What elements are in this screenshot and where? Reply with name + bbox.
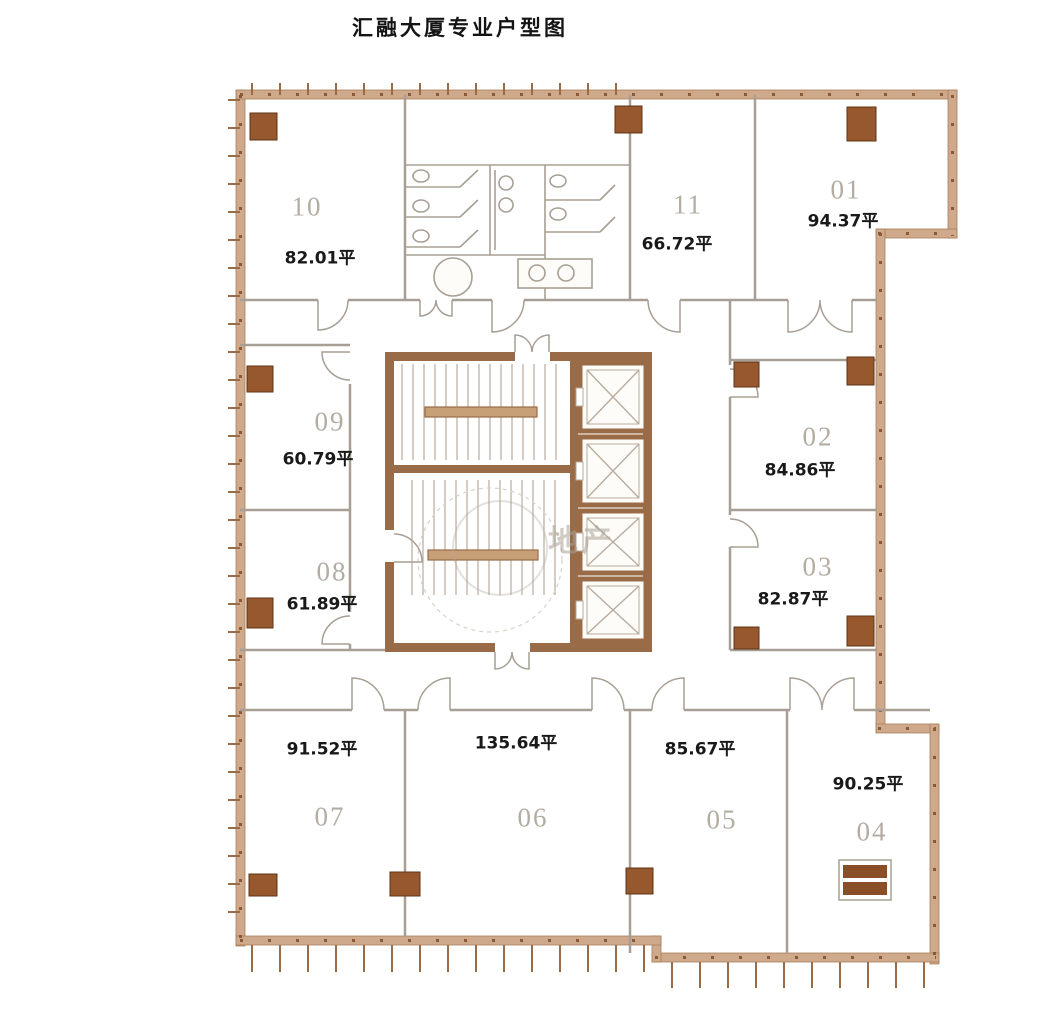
- unit-number-label: 09: [315, 407, 346, 438]
- unit-number-label: 11: [673, 190, 703, 221]
- elevator-shaft-icons: [576, 363, 646, 641]
- unit-number-label: 04: [857, 817, 888, 848]
- watermark-circle: [452, 500, 548, 596]
- unit-area-label: 90.25平: [833, 770, 904, 795]
- unit-number-label: 02: [803, 422, 834, 453]
- unit-number-label: 05: [707, 805, 738, 836]
- service-duct-marker: [839, 860, 891, 900]
- restroom-fixtures: [405, 165, 630, 300]
- unit-number-label: 08: [317, 557, 348, 588]
- unit-number-label: 01: [831, 175, 862, 206]
- unit-area-label: 94.37平: [808, 207, 879, 232]
- elevator-icon: [576, 437, 646, 505]
- unit-number-label: 07: [315, 802, 346, 833]
- unit-area-label: 61.89平: [287, 590, 358, 615]
- unit-area-label: 85.67平: [665, 735, 736, 760]
- elevator-icon: [576, 579, 646, 641]
- watermark-text: 地产: [548, 516, 616, 560]
- unit-area-label: 135.64平: [475, 729, 558, 754]
- unit-area-label: 60.79平: [283, 445, 354, 470]
- elevator-icon: [576, 363, 646, 431]
- unit-number-label: 03: [803, 552, 834, 583]
- floor-plan-page: 汇融大厦专业户型图: [0, 0, 1040, 1024]
- unit-area-label: 82.01平: [285, 244, 356, 269]
- unit-number-label: 10: [292, 192, 323, 223]
- unit-number-label: 06: [518, 803, 549, 834]
- unit-area-label: 82.87平: [758, 585, 829, 610]
- unit-area-label: 91.52平: [287, 735, 358, 760]
- column-markers: [247, 106, 876, 896]
- unit-area-label: 84.86平: [765, 456, 836, 481]
- unit-area-label: 66.72平: [642, 230, 713, 255]
